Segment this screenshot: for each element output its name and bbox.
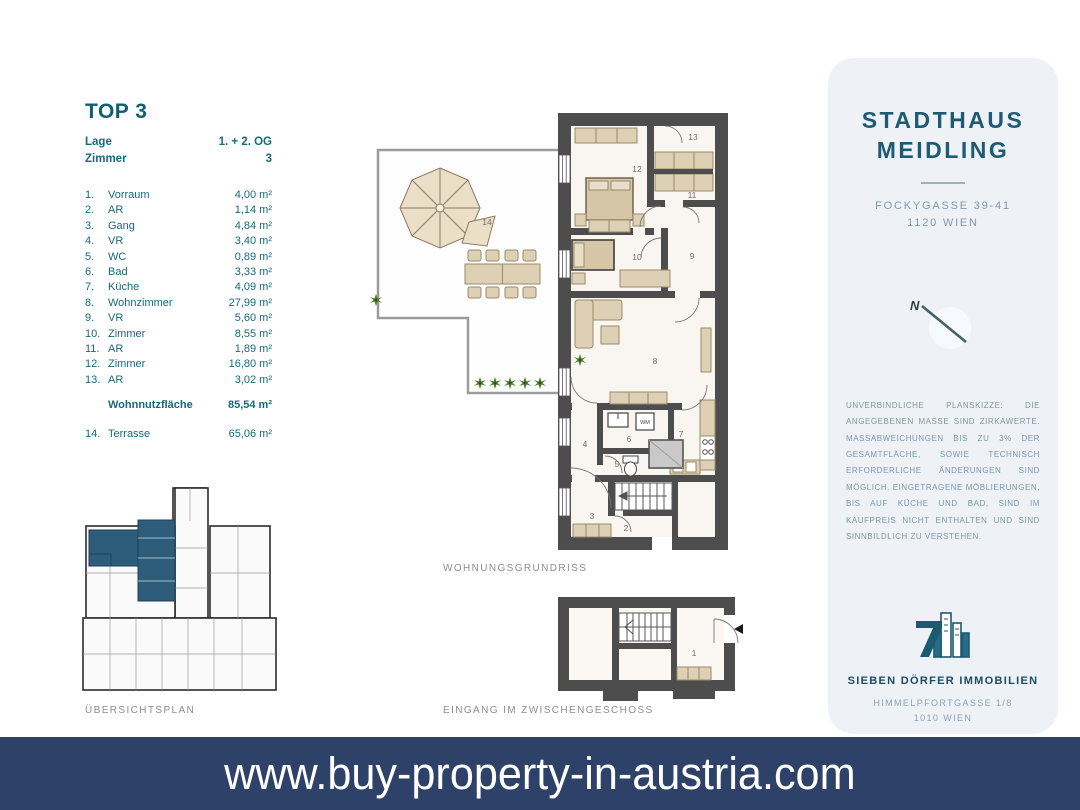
room-number-4: 4 xyxy=(583,439,588,449)
room-no: 1. xyxy=(85,189,108,201)
room-number-13: 13 xyxy=(688,132,698,142)
room-number-11: 11 xyxy=(688,190,697,200)
room-no: 10. xyxy=(85,328,108,340)
website-banner: www.buy-property-in-austria.com xyxy=(0,737,1080,810)
room-name: Terrasse xyxy=(108,428,229,440)
meta-label: Zimmer xyxy=(85,153,266,165)
room-row: 11.AR1,89 m² xyxy=(85,343,272,355)
brochure-page: TOP 3 Lage 1. + 2. OG Zimmer 3 1.Vorraum… xyxy=(0,0,1080,810)
room-name: AR xyxy=(108,374,235,386)
room-no: 2. xyxy=(85,204,108,216)
room-name: AR xyxy=(108,204,235,216)
room-name: VR xyxy=(108,235,235,247)
room-no: 6. xyxy=(85,266,108,278)
room-area: 8,55 m² xyxy=(235,328,272,340)
north-arrow-icon: N xyxy=(888,290,998,360)
entrance-plan-caption: EINGANG IM ZWISCHENGESCHOSS xyxy=(443,705,654,716)
room-no: 8. xyxy=(85,297,108,309)
room-area: 65,06 m² xyxy=(229,428,272,440)
meta-row-lage: Lage 1. + 2. OG xyxy=(85,136,272,148)
room-name: VR xyxy=(108,312,235,324)
company-name: SIEBEN DÖRFER IMMOBILIEN xyxy=(828,675,1058,687)
room-number-9: 9 xyxy=(690,251,695,261)
room-area: 5,60 m² xyxy=(235,312,272,324)
room-area: 4,00 m² xyxy=(235,189,272,201)
room-area: 16,80 m² xyxy=(229,358,272,370)
room-no: 13. xyxy=(85,374,108,386)
room-number-6: 6 xyxy=(627,434,632,444)
company-city: 1010 WIEN xyxy=(828,711,1058,725)
website-url-link[interactable]: www.buy-property-in-austria.com xyxy=(224,748,855,800)
room-row: 5.WC0,89 m² xyxy=(85,251,272,263)
room-row: 13.AR3,02 m² xyxy=(85,374,272,386)
total-value: 85,54 m² xyxy=(228,399,272,411)
room-name: Bad xyxy=(108,266,235,278)
room-no: 9. xyxy=(85,312,108,324)
room-no: 4. xyxy=(85,235,108,247)
room-area: 1,14 m² xyxy=(235,204,272,216)
room-name: Wohnzimmer xyxy=(108,297,229,309)
room-row: 12.Zimmer16,80 m² xyxy=(85,358,272,370)
room-area: 1,89 m² xyxy=(235,343,272,355)
room-number-10: 10 xyxy=(632,252,642,262)
room-name: Zimmer xyxy=(108,358,229,370)
disclaimer-text: UNVERBINDLICHE PLANSKIZZE: DIE ANGEGEBEN… xyxy=(846,398,1040,546)
project-title-line2: MEIDLING xyxy=(828,136,1058,166)
room-no: 7. xyxy=(85,281,108,293)
building-outline xyxy=(83,488,276,690)
room-area: 0,89 m² xyxy=(235,251,272,263)
room-name: Küche xyxy=(108,281,235,293)
main-floor-plan: 14 xyxy=(365,100,745,560)
meta-label: Lage xyxy=(85,136,219,148)
overview-plan-caption: ÜBERSICHTSPLAN xyxy=(85,705,195,716)
room-number-7: 7 xyxy=(679,429,684,439)
stairs xyxy=(615,483,672,510)
room-area: 3,40 m² xyxy=(235,235,272,247)
project-city: 1120 WIEN xyxy=(828,215,1058,232)
info-panel: STADTHAUS MEIDLING FOCKYGASSE 39-41 1120… xyxy=(828,58,1058,734)
company-address: HIMMELPFORTGASSE 1/8 1010 WIEN xyxy=(828,696,1058,725)
terrace-area: 14 xyxy=(370,150,558,393)
room-number-2: 2 xyxy=(624,523,629,533)
terrace-row: 14. Terrasse 65,06 m² xyxy=(85,428,272,440)
room-number-12: 12 xyxy=(632,164,642,174)
project-title-line1: STADTHAUS xyxy=(828,106,1058,136)
entrance-floor-plan: 1 xyxy=(553,593,745,707)
room-row: 8.Wohnzimmer27,99 m² xyxy=(85,297,272,309)
company-street: HIMMELPFORTGASSE 1/8 xyxy=(828,696,1058,710)
room-name: Zimmer xyxy=(108,328,235,340)
room-list: 1.Vorraum4,00 m² 2.AR1,14 m² 3.Gang4,84 … xyxy=(85,189,272,386)
room-row: 7.Küche4,09 m² xyxy=(85,281,272,293)
room-area: 4,09 m² xyxy=(235,281,272,293)
room-no: 11. xyxy=(85,343,108,355)
room-name: WC xyxy=(108,251,235,263)
room-row: 2.AR1,14 m² xyxy=(85,204,272,216)
project-street: FOCKYGASSE 39-41 xyxy=(828,198,1058,215)
overview-plan xyxy=(80,478,280,698)
title-divider xyxy=(921,182,965,184)
mezzanine-stairs xyxy=(619,613,671,641)
company-logo xyxy=(914,611,972,661)
room-no: 3. xyxy=(85,220,108,232)
unit-title: TOP 3 xyxy=(85,100,272,124)
meta-value: 1. + 2. OG xyxy=(219,136,272,148)
room-number-5: 5 xyxy=(615,459,620,469)
project-title: STADTHAUS MEIDLING xyxy=(828,106,1058,166)
room-name: Gang xyxy=(108,220,235,232)
room-row: 9.VR5,60 m² xyxy=(85,312,272,324)
room-number-1: 1 xyxy=(692,648,697,658)
project-address: FOCKYGASSE 39-41 1120 WIEN xyxy=(828,198,1058,232)
room-area: 4,84 m² xyxy=(235,220,272,232)
total-label: Wohnnutzfläche xyxy=(108,399,228,411)
room-area: 3,02 m² xyxy=(235,374,272,386)
spacer xyxy=(85,399,108,411)
room-number-14: 14 xyxy=(482,217,492,227)
unit-info-table: TOP 3 Lage 1. + 2. OG Zimmer 3 1.Vorraum… xyxy=(85,100,272,443)
room-row: 4.VR3,40 m² xyxy=(85,235,272,247)
room-row: 10.Zimmer8,55 m² xyxy=(85,328,272,340)
room-area: 3,33 m² xyxy=(235,266,272,278)
meta-row-zimmer: Zimmer 3 xyxy=(85,153,272,165)
room-no: 12. xyxy=(85,358,108,370)
room-row: 6.Bad3,33 m² xyxy=(85,266,272,278)
washing-machine-label: WM xyxy=(640,420,650,426)
north-letter: N xyxy=(910,298,920,313)
meta-value: 3 xyxy=(266,153,272,165)
main-plan-caption: WOHNUNGSGRUNDRISS xyxy=(443,563,587,574)
room-name: Vorraum xyxy=(108,189,235,201)
total-living-area-row: Wohnnutzfläche 85,54 m² xyxy=(85,399,272,411)
room-number-3: 3 xyxy=(590,511,595,521)
room-area: 27,99 m² xyxy=(229,297,272,309)
room-row: 3.Gang4,84 m² xyxy=(85,220,272,232)
room-number-8: 8 xyxy=(653,356,658,366)
room-row: 1.Vorraum4,00 m² xyxy=(85,189,272,201)
room-no: 14. xyxy=(85,428,108,440)
room-name: AR xyxy=(108,343,235,355)
room-no: 5. xyxy=(85,251,108,263)
